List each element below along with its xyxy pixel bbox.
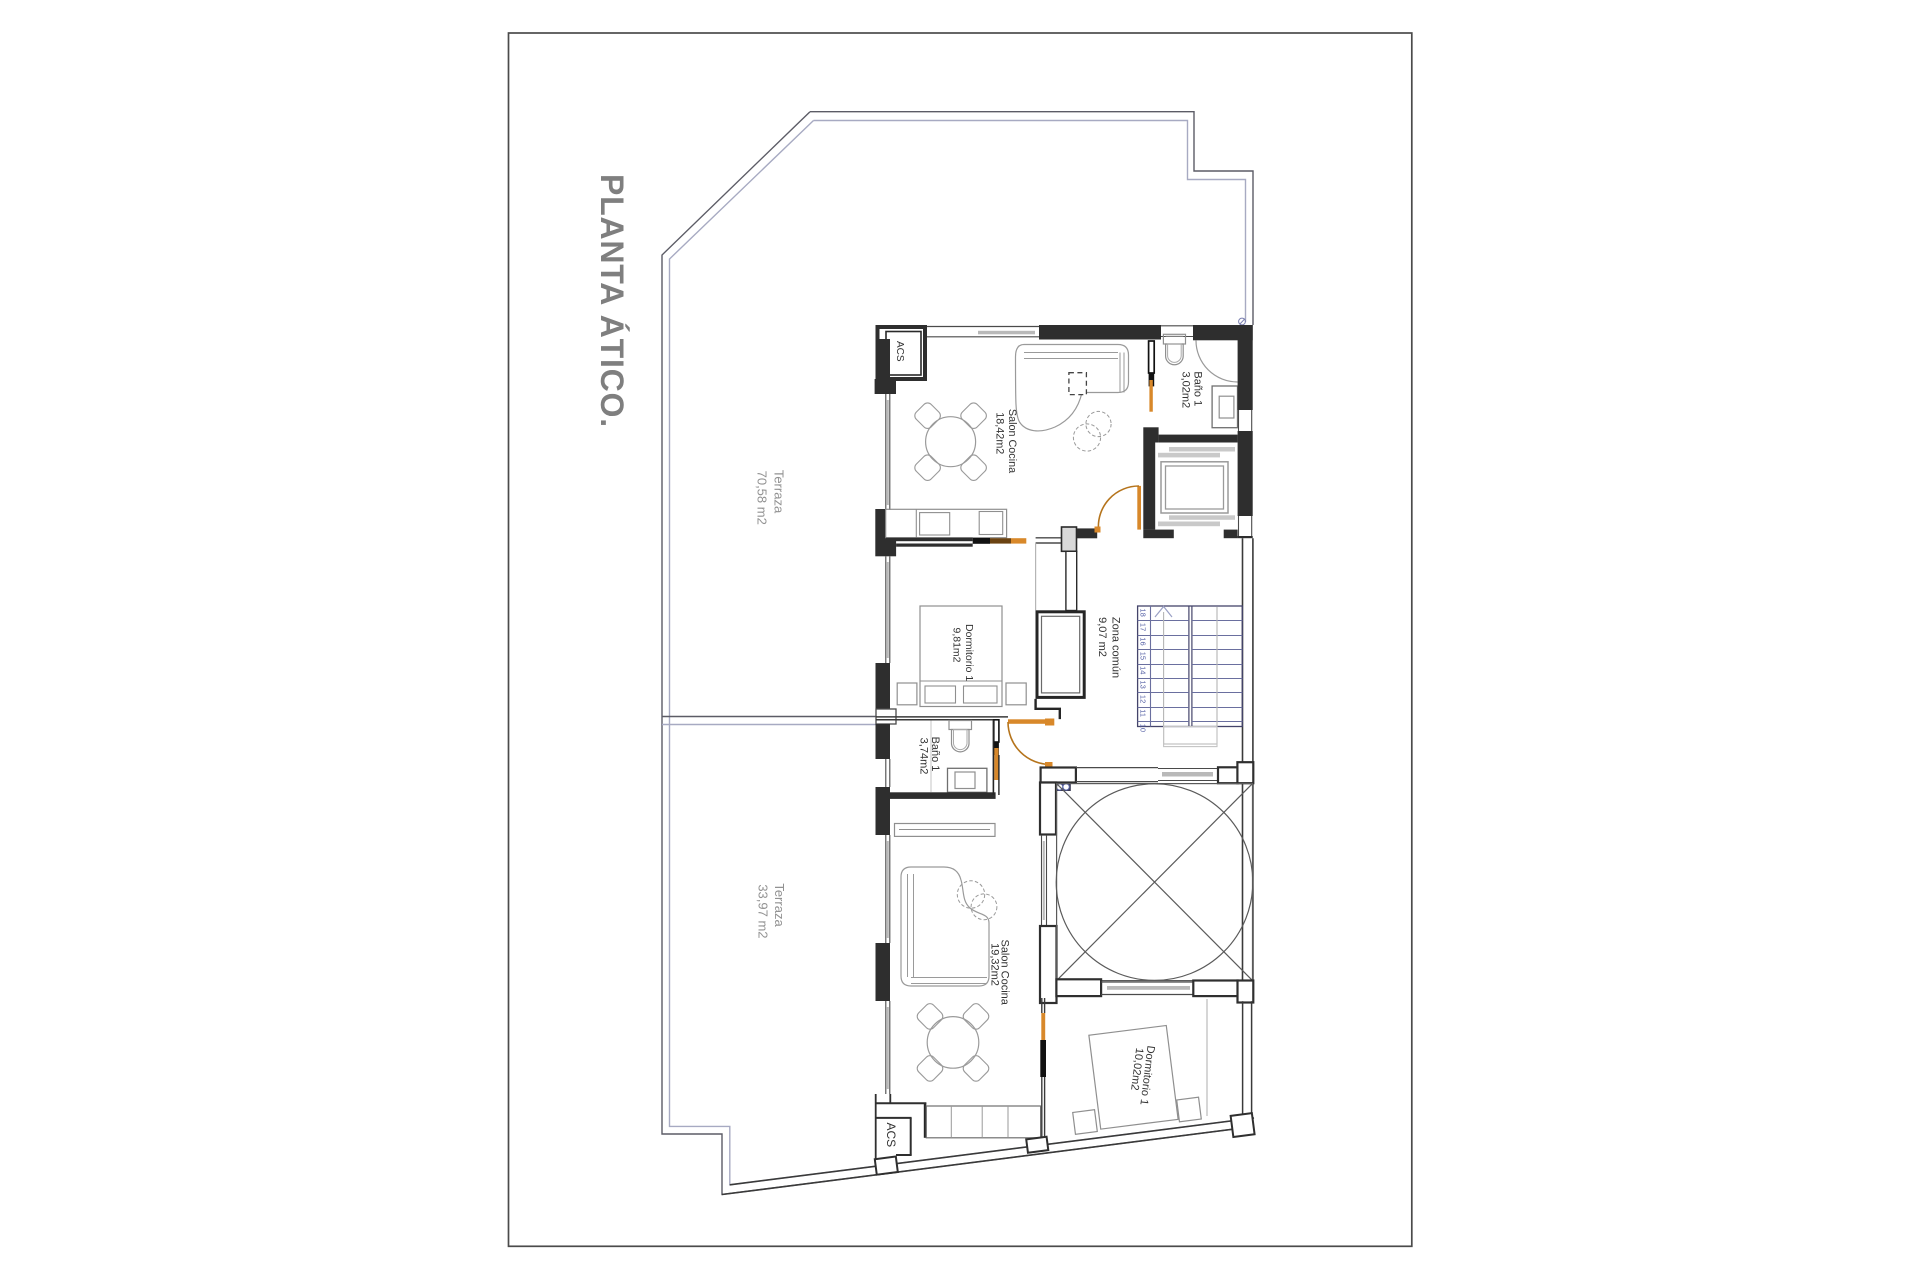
svg-text:PLANTA ÁTICO.: PLANTA ÁTICO. [594, 174, 630, 428]
svg-text:17: 17 [1139, 623, 1148, 631]
svg-text:11: 11 [1139, 709, 1148, 717]
svg-text:Dormitorio 19,81m2: Dormitorio 19,81m2 [950, 624, 975, 681]
svg-text:Dormitorio 110,02m2: Dormitorio 110,02m2 [1126, 1044, 1156, 1106]
svg-text:12: 12 [1139, 695, 1148, 703]
svg-text:Terraza70,58 m2: Terraza70,58 m2 [755, 470, 787, 525]
svg-text:ACS: ACS [894, 341, 905, 362]
svg-text:Baño 13,74m2: Baño 13,74m2 [917, 737, 941, 775]
svg-text:Zona común9,07 m2: Zona común9,07 m2 [1096, 617, 1121, 678]
svg-text:14: 14 [1139, 666, 1148, 674]
svg-text:ACS: ACS [884, 1123, 898, 1148]
svg-text:13: 13 [1139, 681, 1148, 689]
svg-text:15: 15 [1139, 652, 1148, 660]
svg-text:10: 10 [1139, 724, 1148, 732]
svg-text:Baño 13,02m2: Baño 13,02m2 [1179, 371, 1203, 408]
svg-text:Salon Cocina18,42m2: Salon Cocina18,42m2 [994, 409, 1018, 473]
svg-text:Salon Cocina19,32m2: Salon Cocina19,32m2 [989, 939, 1011, 1005]
svg-text:18: 18 [1139, 609, 1148, 617]
svg-text:16: 16 [1139, 637, 1148, 645]
svg-text:Terraza33,97 m2: Terraza33,97 m2 [756, 883, 787, 938]
